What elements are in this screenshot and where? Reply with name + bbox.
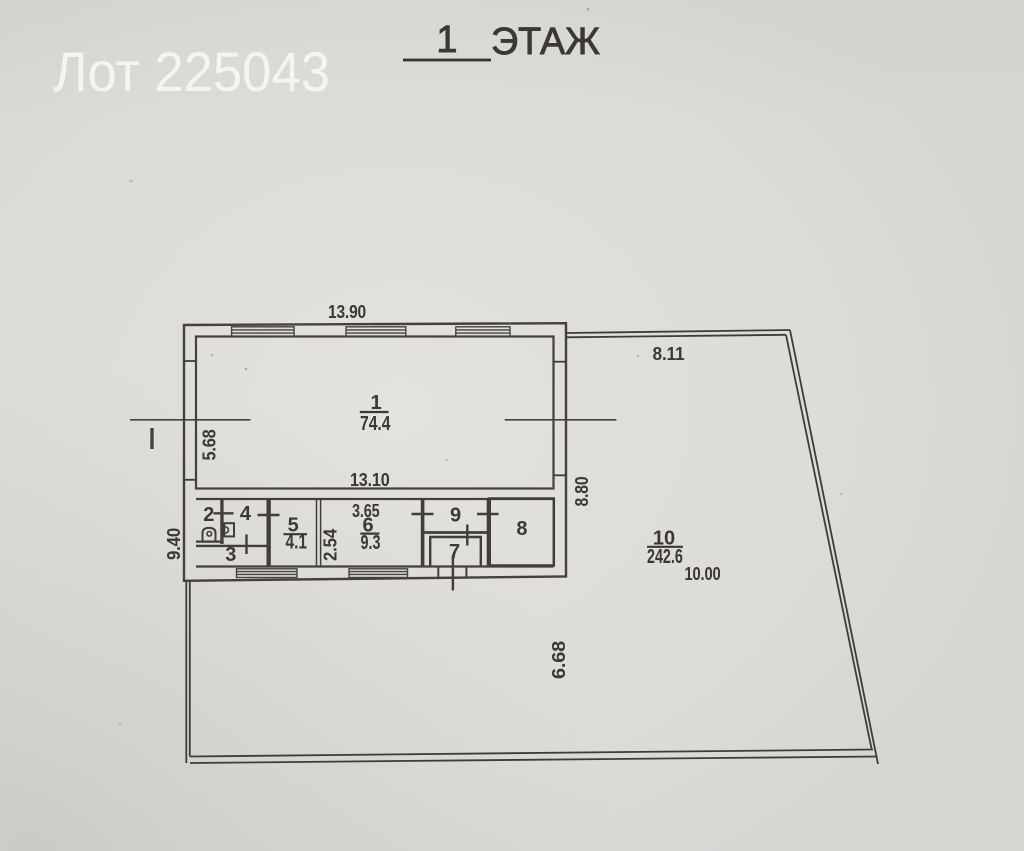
svg-text:10.00: 10.00 — [685, 564, 721, 584]
svg-text:13.10: 13.10 — [350, 470, 390, 490]
svg-text:2: 2 — [203, 504, 214, 526]
svg-text:13.90: 13.90 — [328, 302, 366, 322]
svg-text:Лот 225043: Лот 225043 — [53, 40, 330, 103]
svg-text:9: 9 — [450, 505, 461, 527]
svg-text:4.1: 4.1 — [286, 532, 308, 554]
svg-text:5.68: 5.68 — [200, 429, 220, 460]
svg-text:1: 1 — [436, 19, 457, 61]
svg-text:9.3: 9.3 — [361, 532, 381, 554]
svg-text:3: 3 — [225, 544, 236, 566]
svg-text:7: 7 — [449, 541, 460, 563]
svg-text:8.80: 8.80 — [572, 476, 592, 506]
svg-text:242.6: 242.6 — [647, 546, 683, 568]
svg-text:ЭТАЖ: ЭТАЖ — [491, 21, 600, 63]
svg-text:2.54: 2.54 — [321, 529, 341, 561]
svg-text:1: 1 — [370, 392, 381, 414]
svg-text:74.4: 74.4 — [360, 413, 391, 435]
svg-text:9.40: 9.40 — [164, 528, 184, 560]
svg-text:4: 4 — [240, 503, 252, 525]
svg-text:8.11: 8.11 — [653, 344, 685, 364]
svg-text:6.68: 6.68 — [549, 641, 569, 679]
svg-text:8: 8 — [516, 518, 527, 540]
